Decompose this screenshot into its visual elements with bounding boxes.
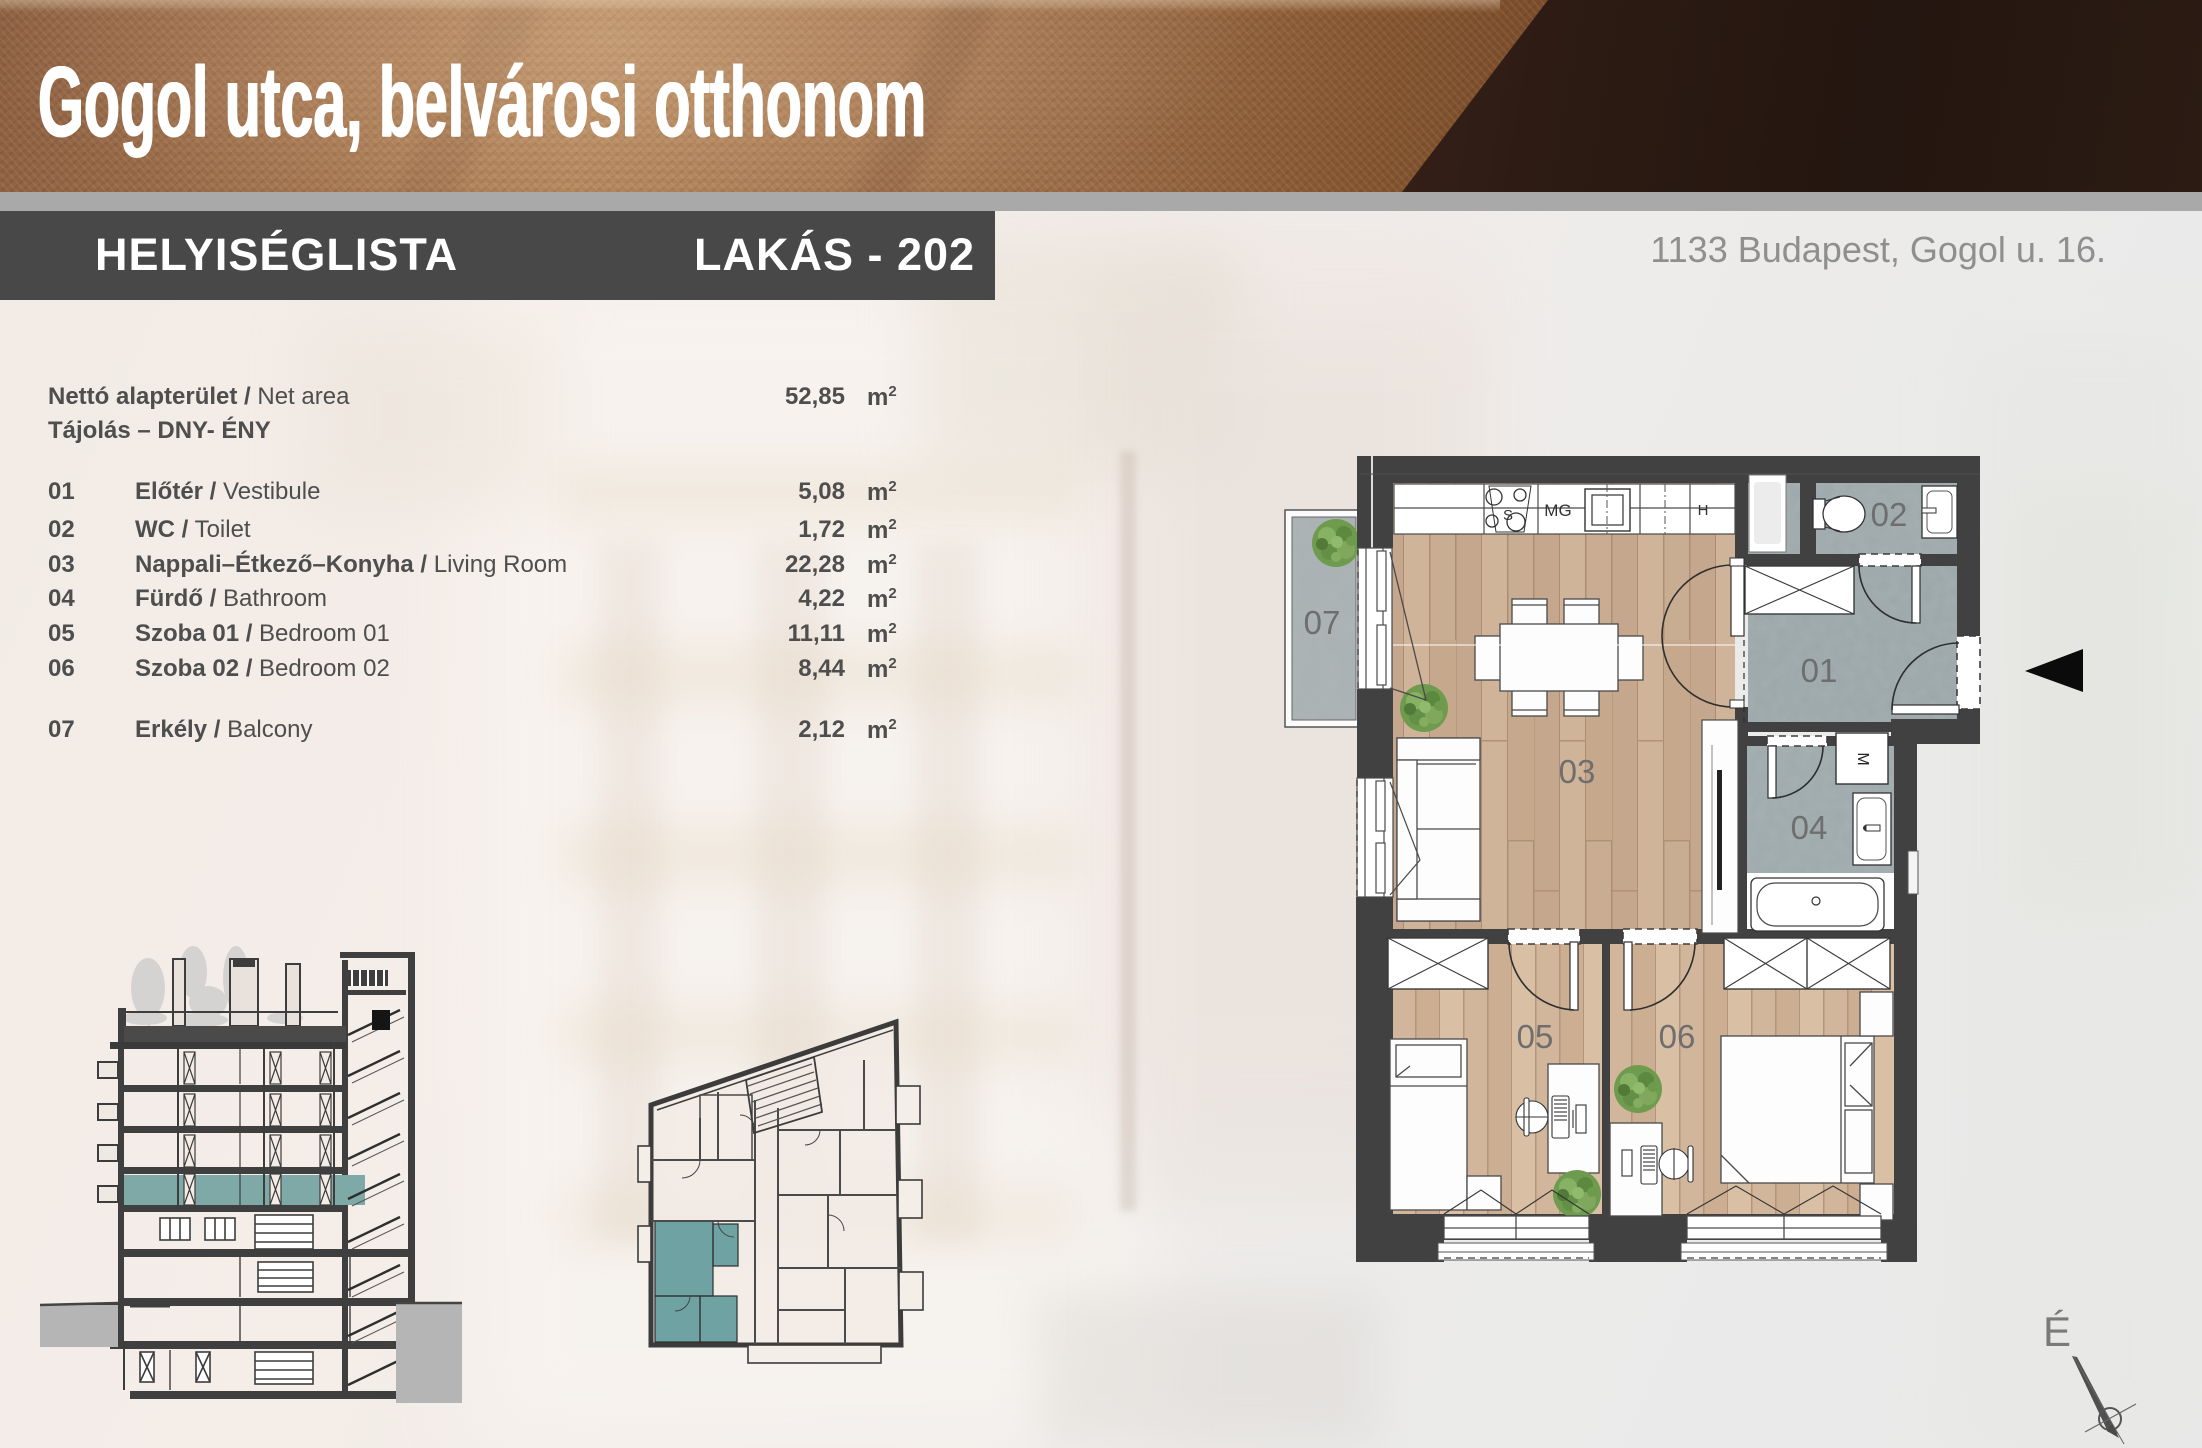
svg-text:02: 02 bbox=[1871, 496, 1908, 533]
svg-text:03: 03 bbox=[1559, 753, 1596, 790]
svg-text:01: 01 bbox=[1801, 652, 1838, 689]
svg-text:MG: MG bbox=[1544, 501, 1571, 520]
svg-text:M: M bbox=[1854, 752, 1871, 765]
svg-text:04: 04 bbox=[1791, 809, 1828, 846]
svg-text:07: 07 bbox=[1304, 604, 1341, 641]
svg-text:06: 06 bbox=[1659, 1018, 1696, 1055]
svg-text:S: S bbox=[1503, 507, 1513, 524]
svg-text:É: É bbox=[2043, 1308, 2071, 1355]
svg-text:H: H bbox=[1698, 502, 1709, 519]
svg-text:05: 05 bbox=[1517, 1018, 1554, 1055]
